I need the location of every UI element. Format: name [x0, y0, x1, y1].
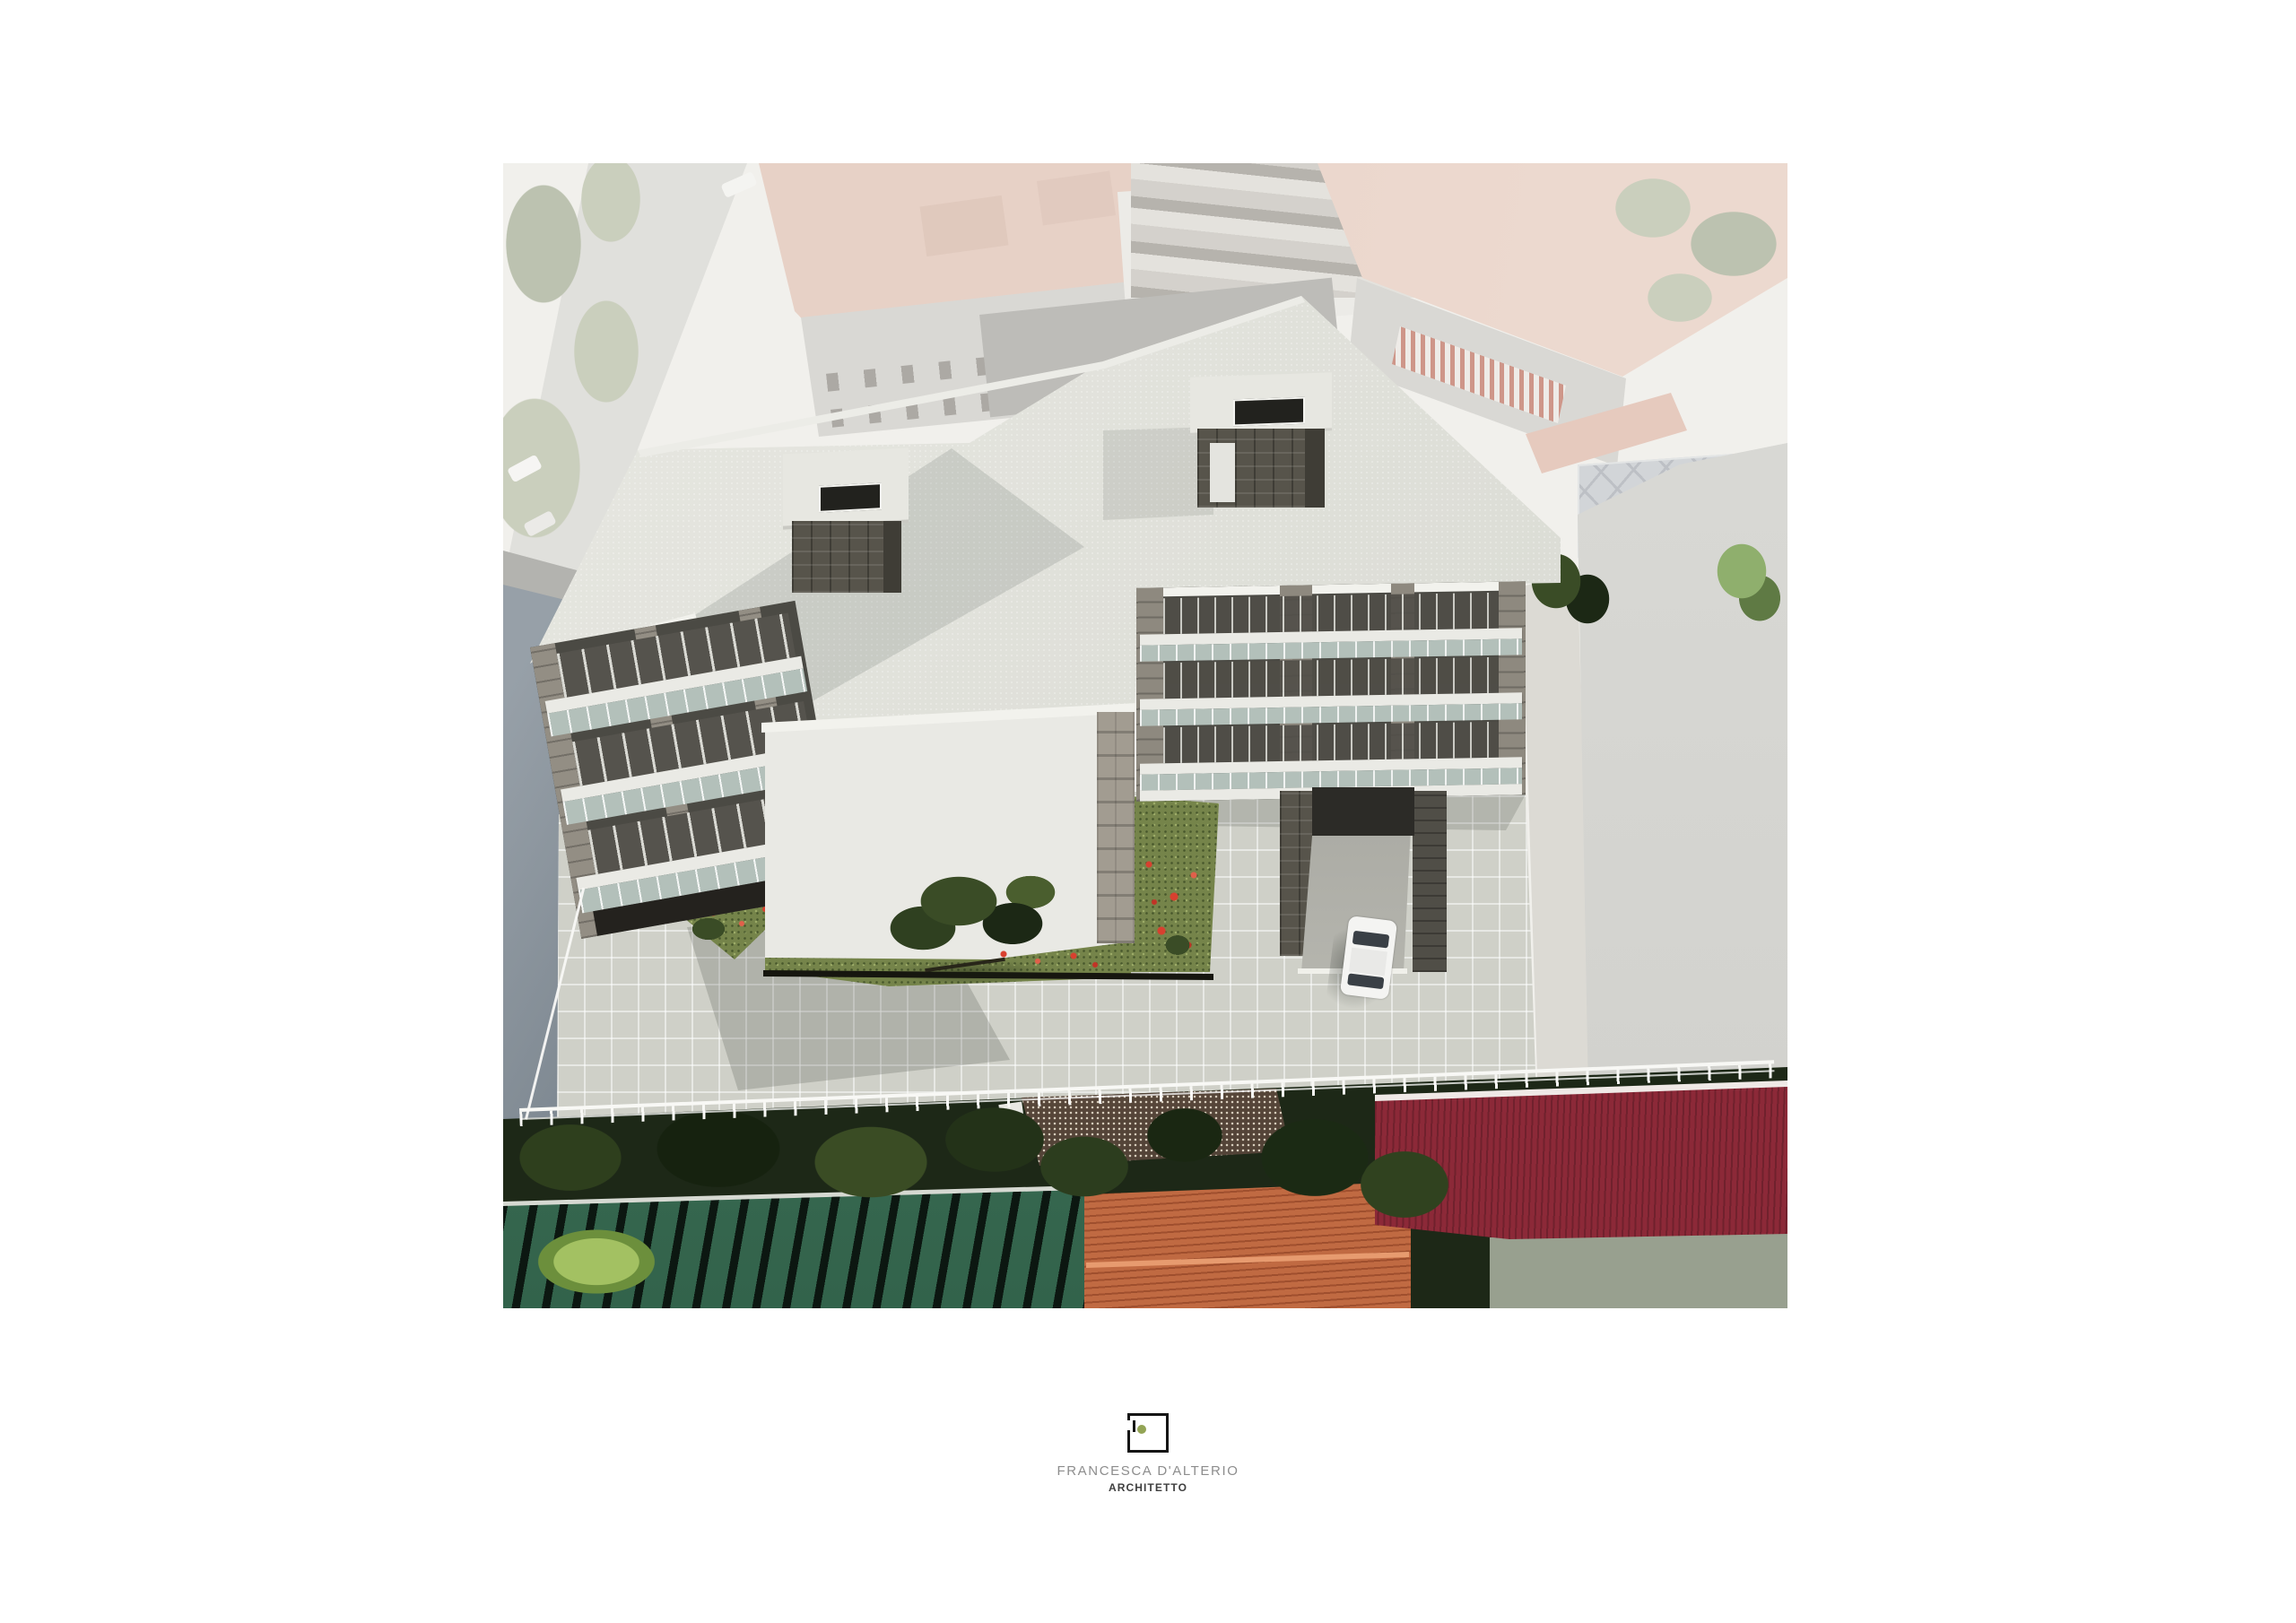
window-band — [1163, 593, 1499, 635]
car-roof — [1349, 948, 1387, 976]
stair-tower-right-skylight — [1233, 397, 1305, 427]
architect-name: FRANCESCA D'ALTERIO — [1057, 1463, 1239, 1479]
white-car — [1340, 916, 1397, 1000]
car-windshield — [1352, 931, 1390, 949]
window-band — [1163, 657, 1499, 699]
logo-frame-step — [1133, 1420, 1135, 1432]
poppy-flowers — [987, 943, 1104, 974]
presentation-board: FRANCESCA D'ALTERIO ARCHITETTO — [0, 0, 2296, 1623]
logo-frame-gap — [1127, 1420, 1130, 1430]
roadside-bush — [1701, 531, 1787, 628]
lawn-bush — [1156, 927, 1199, 963]
stair-tower-right-door — [1210, 443, 1235, 502]
right-wing-facade — [1136, 581, 1526, 802]
ramp-wall-right — [1413, 791, 1447, 972]
architect-logo: FRANCESCA D'ALTERIO ARCHITETTO — [0, 1413, 2296, 1494]
bright-bush — [519, 1219, 674, 1307]
stair-tower-right-side — [1305, 429, 1325, 508]
garage-opening — [1312, 787, 1414, 836]
logo-dot-icon — [1137, 1425, 1146, 1434]
stair-tower-left-side — [883, 521, 901, 593]
stair-tower-left-skylight — [819, 482, 882, 513]
aerial-lawn-northeast — [1599, 163, 1787, 334]
stone-quoin-strip — [1097, 712, 1135, 943]
architect-logo-icon — [1127, 1413, 1169, 1453]
window-band — [1163, 722, 1499, 764]
architect-profession: ARCHITETTO — [1109, 1481, 1187, 1494]
car-rear-window — [1347, 973, 1384, 989]
aerial-render-image — [503, 163, 1787, 1308]
